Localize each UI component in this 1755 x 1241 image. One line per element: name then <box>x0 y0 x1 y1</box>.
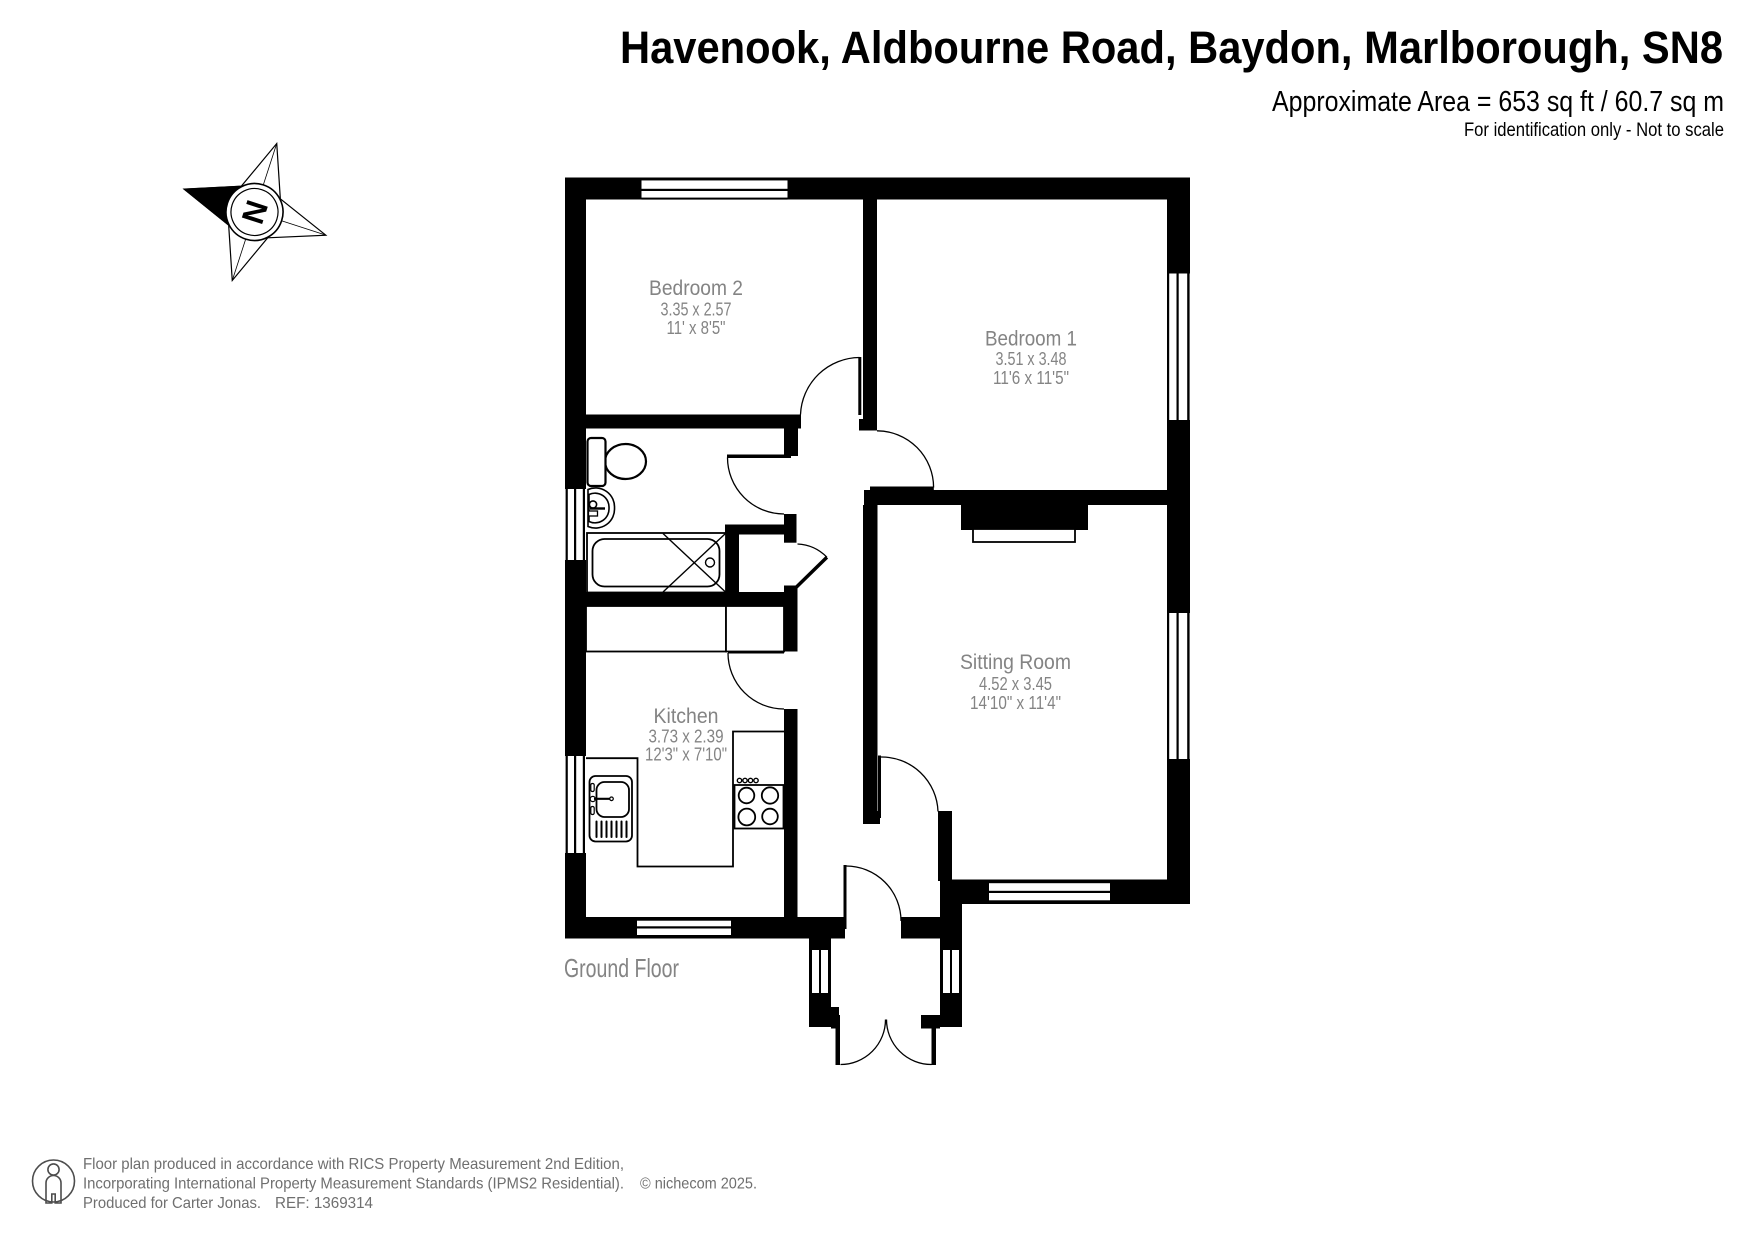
svg-text:14'10" x 11'4": 14'10" x 11'4" <box>970 693 1061 713</box>
svg-text:Ground Floor: Ground Floor <box>564 953 679 983</box>
svg-text:For identification only - Not: For identification only - Not to scale <box>1464 119 1724 141</box>
svg-text:© nichecom 2025.: © nichecom 2025. <box>640 1176 757 1193</box>
svg-text:3.73 x 2.39: 3.73 x 2.39 <box>649 727 724 747</box>
svg-text:Bedroom 1: Bedroom 1 <box>985 327 1077 351</box>
svg-text:Kitchen: Kitchen <box>654 704 719 728</box>
svg-text:Bedroom 2: Bedroom 2 <box>649 276 743 300</box>
svg-text:Sitting Room: Sitting Room <box>960 650 1071 674</box>
svg-text:11' x 8'5": 11' x 8'5" <box>667 318 726 338</box>
svg-text:3.35 x 2.57: 3.35 x 2.57 <box>661 300 732 320</box>
svg-text:Produced for Carter Jonas.: Produced for Carter Jonas. <box>83 1195 261 1212</box>
svg-text:Incorporating International Pr: Incorporating International Property Mea… <box>83 1176 624 1193</box>
svg-text:4.52 x 3.45: 4.52 x 3.45 <box>979 674 1052 694</box>
svg-text:3.51 x 3.48: 3.51 x 3.48 <box>996 349 1067 369</box>
svg-text:Havenook, Aldbourne Road, Bayd: Havenook, Aldbourne Road, Baydon, Marlbo… <box>620 22 1723 73</box>
svg-text:Approximate Area = 653 sq ft /: Approximate Area = 653 sq ft / 60.7 sq m <box>1272 86 1724 118</box>
svg-text:REF: 1369314: REF: 1369314 <box>275 1195 373 1212</box>
svg-text:11'6 x 11'5": 11'6 x 11'5" <box>993 368 1069 388</box>
svg-text:Floor plan produced in accorda: Floor plan produced in accordance with R… <box>83 1156 624 1173</box>
svg-text:12'3" x 7'10": 12'3" x 7'10" <box>645 745 727 765</box>
